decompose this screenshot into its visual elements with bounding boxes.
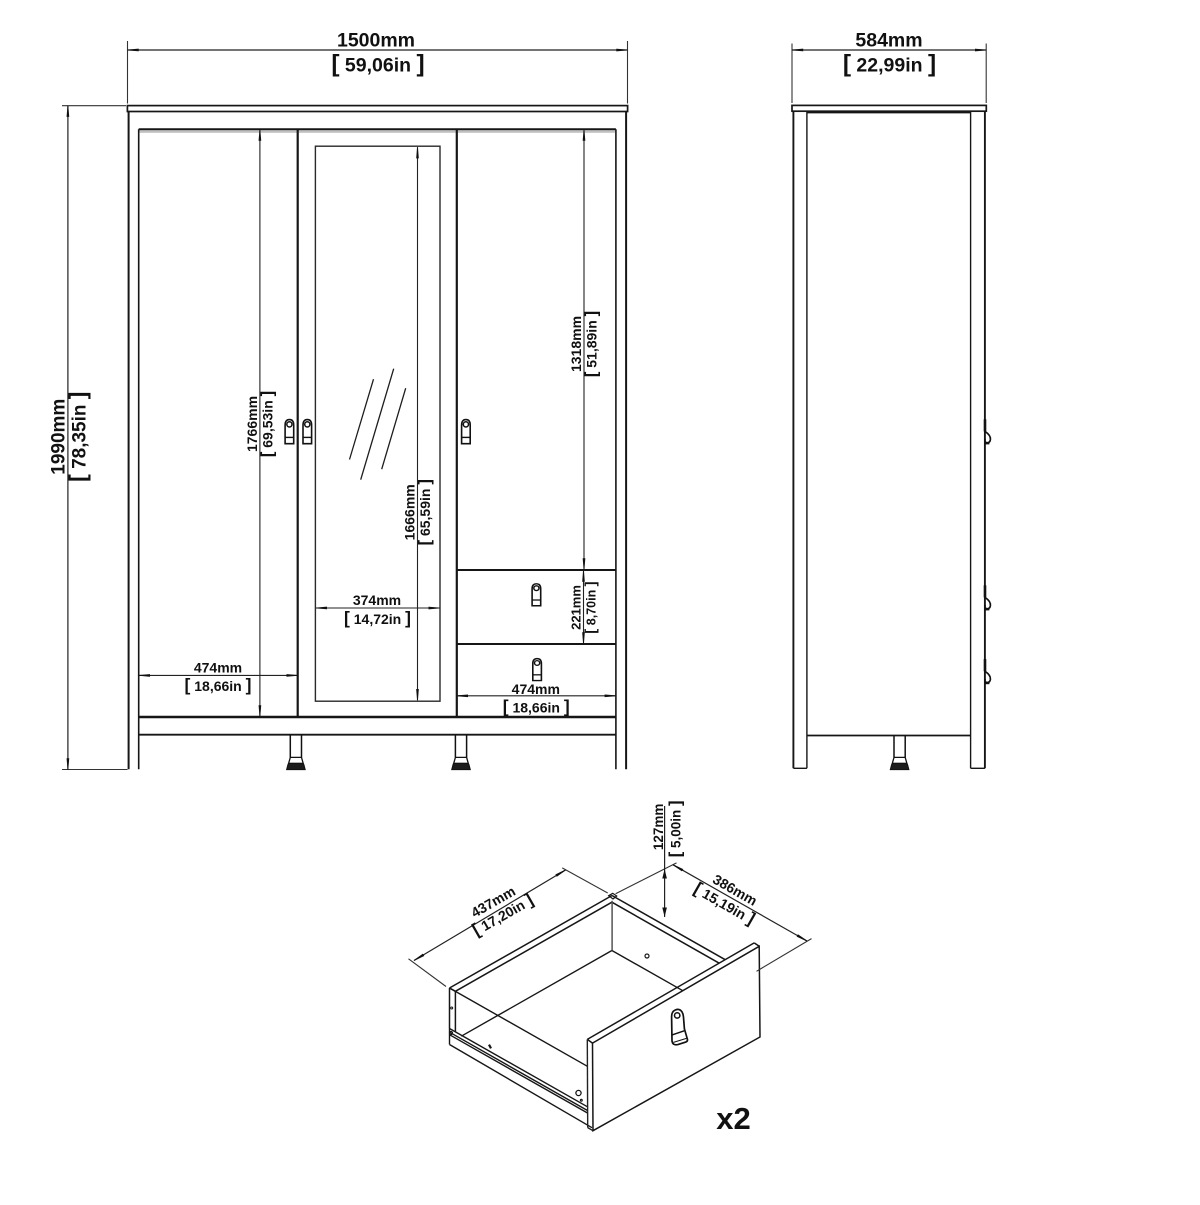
svg-text:1766mm: 1766mm	[244, 396, 260, 452]
svg-text:374mm: 374mm	[353, 592, 401, 608]
svg-text:[ 8,70in ]: [ 8,70in ]	[583, 581, 600, 633]
svg-text:[ 51,89in ]: [ 51,89in ]	[582, 311, 600, 377]
svg-text:[ 69,53in ]: [ 69,53in ]	[258, 391, 276, 457]
svg-text:127mm: 127mm	[651, 804, 666, 851]
svg-text:[ 18,66in ]: [ 18,66in ]	[503, 697, 570, 717]
svg-text:[ 14,72in ]: [ 14,72in ]	[344, 608, 411, 628]
svg-text:[ 65,59in ]: [ 65,59in ]	[416, 479, 434, 545]
svg-text:474mm: 474mm	[194, 659, 242, 675]
svg-text:1990mm: 1990mm	[49, 399, 70, 475]
svg-text:1500mm: 1500mm	[337, 30, 415, 52]
svg-text:1666mm: 1666mm	[401, 484, 417, 540]
svg-text:474mm: 474mm	[512, 681, 560, 697]
svg-text:[ 18,66in ]: [ 18,66in ]	[185, 675, 252, 695]
svg-text:[ 5,00in ]: [ 5,00in ]	[666, 801, 684, 858]
svg-text:1318mm: 1318mm	[568, 316, 584, 372]
svg-text:[ 22,99in ]: [ 22,99in ]	[843, 51, 936, 78]
svg-text:[ 59,06in ]: [ 59,06in ]	[331, 51, 424, 78]
svg-text:x2: x2	[716, 1101, 750, 1136]
svg-text:584mm: 584mm	[855, 30, 922, 52]
svg-text:221mm: 221mm	[568, 585, 583, 630]
